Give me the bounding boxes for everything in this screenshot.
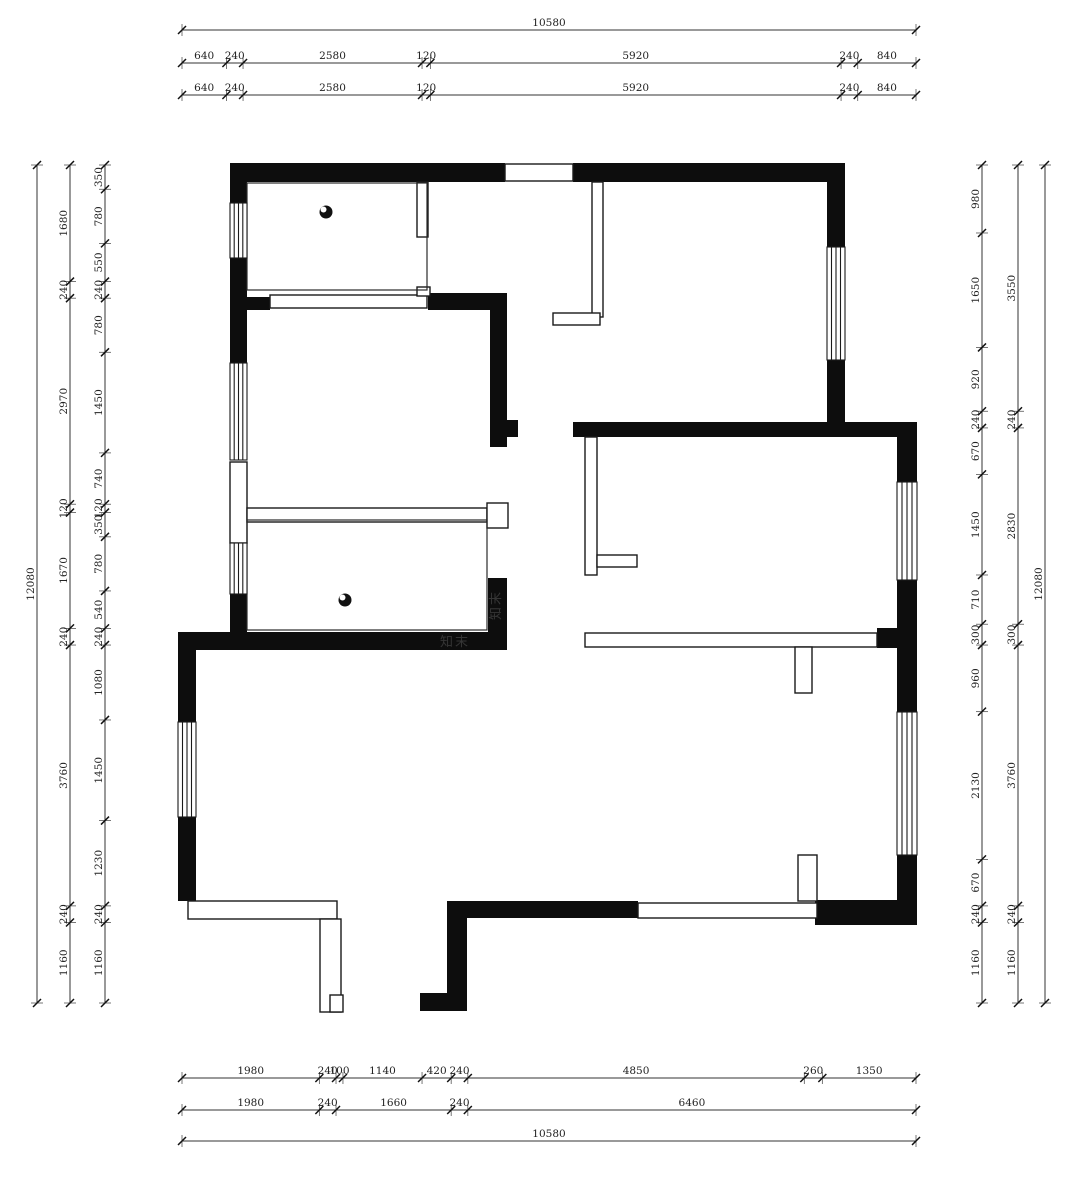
dim-label: 1450 [970,511,982,538]
dim-label: 1230 [93,850,105,877]
dim-label: 12080 [25,567,37,600]
bedroom2-inner-outline [247,520,487,630]
dim-label: 2580 [319,82,346,94]
dim-label: 540 [93,600,105,620]
dim-label: 840 [877,50,897,62]
dim-label: 240 [970,904,982,924]
dim-label: 300 [970,625,982,645]
drain-layer [320,206,352,607]
entry-wall-horizontal [420,993,467,1011]
dim-label: 240 [449,1097,469,1109]
dim-label: 100 [329,1065,349,1077]
door-leaf-2 [798,855,817,901]
dim-label: 1080 [93,669,105,696]
balcony-inner-outline [247,183,427,290]
dim-label: 2970 [58,388,70,415]
dim-label: 1160 [58,949,70,976]
bottom-wall-a [448,901,638,918]
dim-label: 240 [58,904,70,924]
kitchen-partition [592,182,603,317]
dim-label: 1980 [237,1065,264,1077]
watermark-text-vertical: 知末 [488,590,504,620]
dim-label: 240 [93,627,105,647]
dim-label: 4850 [623,1065,650,1077]
dim-label: 350 [93,167,105,187]
bottom-right-corner [815,900,917,925]
right-lower-wall-b [897,580,917,628]
dim-label: 1980 [237,1097,264,1109]
dim-label: 260 [803,1065,823,1077]
dim-label: 240 [93,904,105,924]
floor-plan-canvas: 知末 知末 1058064024025801205920240840640240… [0,0,1080,1178]
door-leaf-1 [795,647,812,693]
dim-label: 550 [93,252,105,272]
balcony-slider [270,295,427,308]
dim-label: 5920 [622,82,649,94]
dim-label: 420 [427,1065,447,1077]
dim-label: 240 [58,627,70,647]
dim-label: 6460 [679,1097,706,1109]
right-lower-wall-c [897,648,917,712]
dim-label: 3760 [1006,762,1018,789]
dim-label: 1350 [856,1065,883,1077]
bedroom3-bottom-wall [585,633,877,647]
dim-label: 640 [194,50,214,62]
top-wall-opening [505,164,573,181]
right-lower-wall-d [897,855,917,901]
dim-label: 120 [416,50,436,62]
dim-label: 10580 [532,17,565,29]
dim-label: 240 [970,410,982,430]
dim-label: 240 [449,1065,469,1077]
right-upper-wall-a [827,180,845,247]
balcony-partition-foot [417,287,430,296]
dim-label: 240 [225,82,245,94]
left-wall-b [230,258,247,363]
window-symbol [230,203,247,258]
dim-label: 350 [93,515,105,535]
bedroom3-shelf [597,555,637,567]
dim-label: 670 [970,873,982,893]
dim-label: 2130 [970,772,982,799]
window-symbol [897,712,917,855]
dim-label: 1660 [380,1097,407,1109]
right-wall-buttress [877,628,917,648]
left-wall-infill [230,462,247,543]
dim-label: 840 [877,82,897,94]
mid-cross-wall [573,422,917,437]
dim-label: 1450 [93,389,105,416]
bedroom3-partition [585,437,597,575]
bottom-slider [638,903,817,918]
top-wall-right [573,163,845,182]
window-symbol [827,247,845,360]
dim-label: 1670 [58,557,70,584]
terrace-wall-foot [330,995,343,1012]
window-symbol [230,363,247,460]
corridor-wall-cap [487,503,508,528]
right-lower-wall-a [897,437,917,482]
dim-label: 1450 [93,757,105,784]
dim-label: 240 [93,280,105,300]
dim-label: 780 [93,554,105,574]
left-lower-wall-b [178,817,196,901]
watermark-text: 知末 [440,634,470,650]
right-upper-wall-b [827,360,845,424]
dim-label: 12080 [1033,567,1045,600]
dim-label: 1140 [369,1065,396,1077]
dim-label: 240 [839,50,859,62]
dim-label: 120 [58,498,70,518]
hallway-wall [490,310,507,447]
dim-label: 120 [416,82,436,94]
dim-label: 300 [1006,625,1018,645]
balcony-sill-wall-right [428,293,507,310]
dim-label: 740 [93,469,105,489]
dim-label: 10580 [532,1128,565,1140]
left-wall-a [230,163,247,203]
window-symbol [897,482,917,580]
dim-label: 5920 [622,50,649,62]
dim-label: 780 [93,315,105,335]
window-symbol [230,543,247,594]
balcony-partition [417,182,428,237]
dim-label: 240 [58,280,70,300]
dim-label: 1160 [970,949,982,976]
left-wall-c [230,594,247,634]
dim-label: 1650 [970,277,982,304]
dim-label: 2580 [319,50,346,62]
balcony-sill-wall-left [230,297,270,310]
dim-label: 240 [225,50,245,62]
terrace-wall-horizontal [188,901,337,919]
dim-label: 240 [1006,410,1018,430]
dim-label: 3550 [1006,275,1018,302]
drain-icon-highlight [321,207,327,213]
dim-label: 2830 [1006,513,1018,540]
kitchen-counter [553,313,600,325]
dim-label: 920 [970,369,982,389]
dim-label: 240 [839,82,859,94]
dim-label: 1160 [93,949,105,976]
top-wall-left [230,163,505,182]
dim-label: 240 [318,1097,338,1109]
dim-label: 780 [93,206,105,226]
dim-label: 1680 [58,210,70,237]
dim-label: 640 [194,82,214,94]
partition-layer [188,164,877,1012]
dim-label: 3760 [58,762,70,789]
dim-label: 240 [1006,904,1018,924]
dim-label: 670 [970,441,982,461]
dim-label: 1160 [1006,949,1018,976]
left-lower-wall-a [178,650,196,722]
window-symbol [178,722,196,817]
room-outline-layer [247,183,487,630]
drain-icon-highlight [340,595,346,601]
dim-label: 710 [970,590,982,610]
dim-label: 980 [970,189,982,209]
dim-label: 960 [970,668,982,688]
kitchen-door-jamb [507,420,518,437]
